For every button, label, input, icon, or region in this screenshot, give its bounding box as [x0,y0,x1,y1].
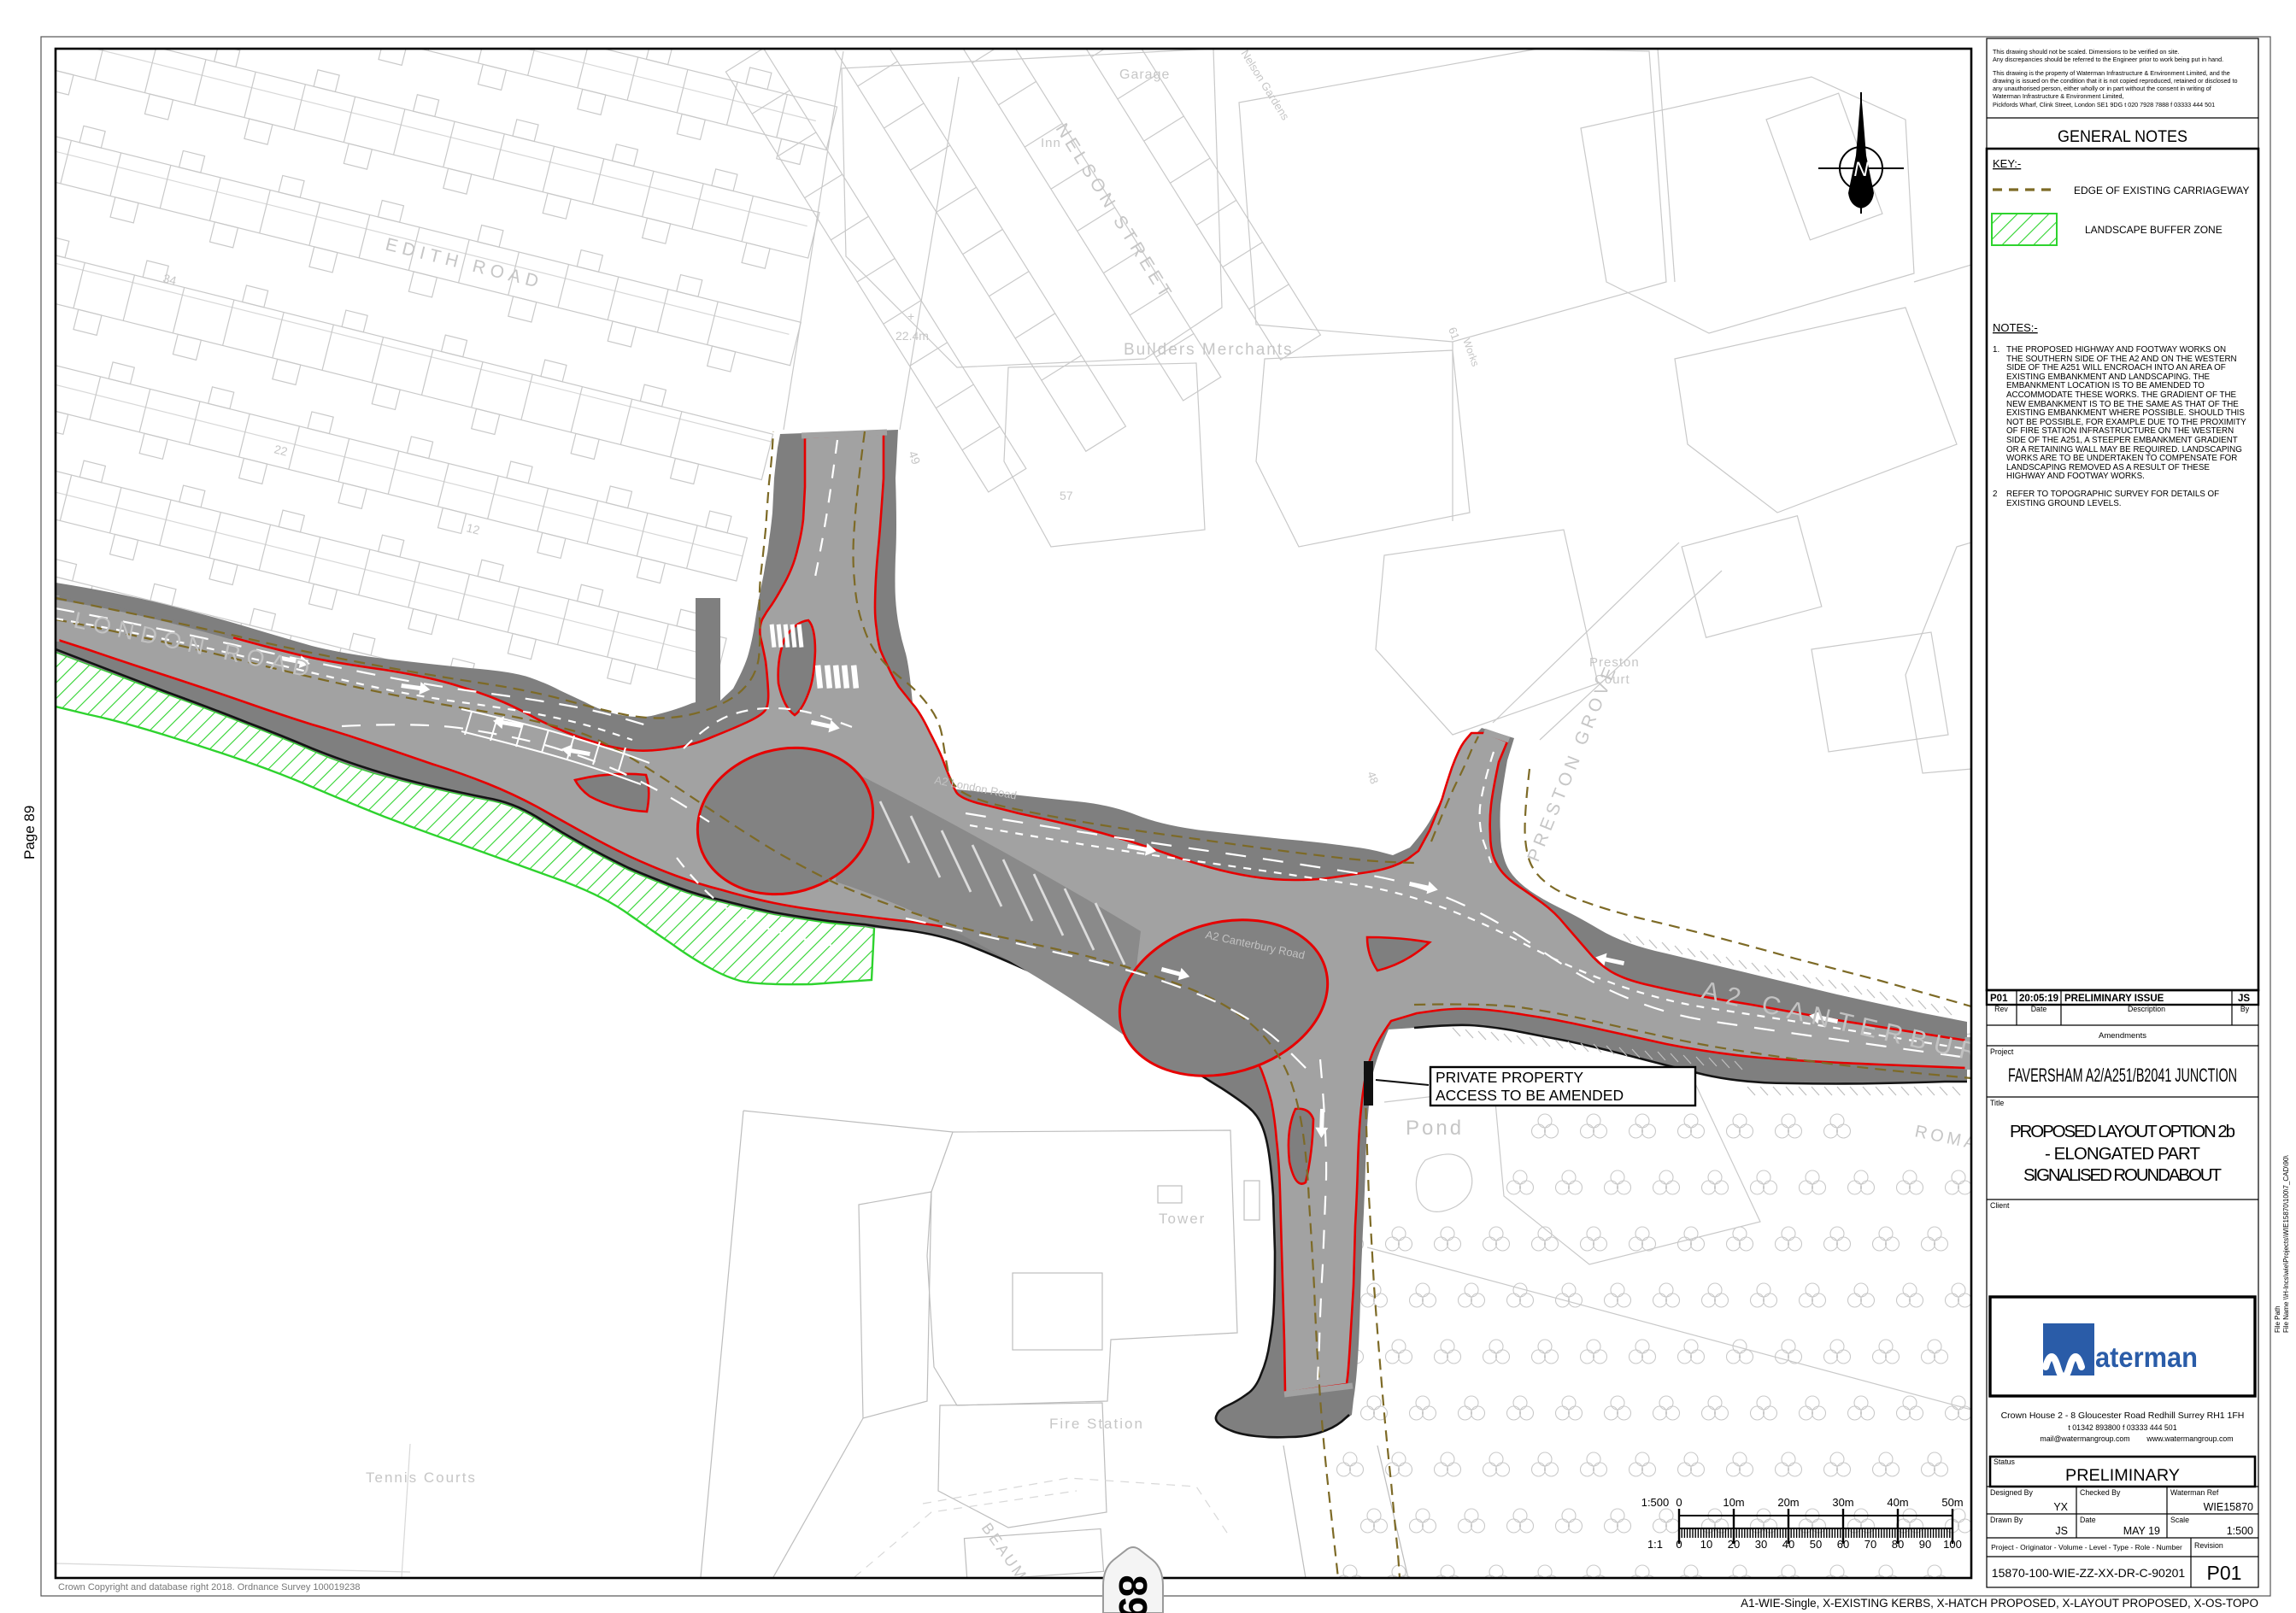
svg-text:EMBANKMENT LOCATION IS TO BE A: EMBANKMENT LOCATION IS TO BE AMENDED TO [2006,381,2205,390]
svg-text:N: N [1853,158,1869,181]
svg-text:90: 90 [1919,1538,1931,1551]
svg-text:- ELONGATED PART: - ELONGATED PART [2045,1144,2200,1164]
svg-text:Garage: Garage [1119,67,1170,82]
svg-text:1:1: 1:1 [1647,1538,1663,1551]
svg-text:70: 70 [1864,1538,1876,1551]
svg-text:Page 89: Page 89 [21,806,38,859]
svg-text:Project: Project [1990,1047,2014,1056]
svg-text:2: 2 [1993,490,1997,499]
svg-text:This drawing should not be sca: This drawing should not be scaled. Dimen… [1993,48,2180,56]
svg-text:Status: Status [1994,1458,2016,1466]
svg-text:By: By [2240,1005,2250,1013]
svg-text:NOTES:-: NOTES:- [1993,321,2038,334]
svg-text:www.watermangroup.com: www.watermangroup.com [2146,1434,2233,1443]
svg-text:1:500: 1:500 [1641,1496,1670,1509]
svg-text:Date: Date [2031,1005,2047,1013]
svg-text:0: 0 [1676,1538,1682,1551]
svg-text:PROPOSED LAYOUT OPTION 2b: PROPOSED LAYOUT OPTION 2b [2010,1122,2235,1141]
svg-text:t 01342 893800 f 03333 444 50: t 01342 893800 f 03333 444 501 [2068,1423,2176,1432]
svg-text:WORKS ARE TO BE UNDERTAKEN TO: WORKS ARE TO BE UNDERTAKEN TO COMPENSATE… [2006,454,2237,463]
svg-text:Waterman Infrastructure & Envi: Waterman Infrastructure & Environment Li… [1993,92,2124,100]
svg-text:Project - Originator - Vol: Project - Originator - Volume - Level - … [1991,1543,2182,1551]
svg-text:A1-WIE-Single, X-EXISTING KERB: A1-WIE-Single, X-EXISTING KERBS, X-HATCH… [1741,1597,2258,1610]
svg-text:JS: JS [2055,1525,2068,1537]
svg-text:30m: 30m [1832,1496,1853,1509]
svg-text:Rev: Rev [1994,1005,2008,1013]
svg-text:GENERAL NOTES: GENERAL NOTES [2058,127,2187,146]
svg-text:LANDSCAPE BUFFER ZONE: LANDSCAPE BUFFER ZONE [2085,224,2223,236]
svg-text:MAY 19: MAY 19 [2123,1525,2160,1537]
svg-text:File Name \\H-lncs\wie\Proje: File Name \\H-lncs\wie\Projects\WIE15870… [2282,1155,2290,1333]
svg-text:40m: 40m [1887,1496,1908,1509]
svg-text:0: 0 [1676,1496,1682,1509]
svg-text:PRELIMINARY ISSUE: PRELIMINARY ISSUE [2064,994,2164,1004]
svg-text:Client: Client [1990,1201,2010,1210]
svg-text:any unauthorised person, eithe: any unauthorised person, either wholly o… [1993,85,2211,92]
svg-text:Description: Description [2128,1005,2165,1013]
svg-text:+: + [907,309,914,323]
svg-text:22.4m: 22.4m [895,329,929,343]
svg-text:P01: P01 [2207,1562,2242,1584]
svg-text:SIGNALISED ROUNDABOUT: SIGNALISED ROUNDABOUT [2023,1165,2222,1185]
svg-text:Crown House 2 - 8 Gloucester: Crown House 2 - 8 Gloucester Road Redhil… [2001,1411,2245,1421]
svg-text:Builders Merchants: Builders Merchants [1124,341,1294,359]
svg-text:FAVERSHAM A2/A251/B2041 JUNCTI: FAVERSHAM A2/A251/B2041 JUNCTION [2008,1065,2237,1086]
svg-text:Any discrepancies should be re: Any discrepancies should be referred to … [1993,56,2223,63]
svg-text:HIGHWAY AND FOOTWAY WORKS.: HIGHWAY AND FOOTWAY WORKS. [2006,472,2145,481]
svg-text:File Path: File Path [2274,1305,2281,1333]
svg-text:89: 89 [1111,1575,1155,1613]
svg-text:EXISTING GROUND LEVELS.: EXISTING GROUND LEVELS. [2006,499,2121,508]
svg-text:80: 80 [1892,1538,1904,1551]
svg-text:P01: P01 [1990,994,2008,1004]
svg-text:aterman: aterman [2095,1341,2198,1373]
svg-text:Waterman Ref: Waterman Ref [2170,1488,2219,1497]
svg-text:OF FIRE STATION INFRASTRUCTURE: OF FIRE STATION INFRASTRUCTURE ON THE WE… [2006,426,2234,436]
svg-text:Tower: Tower [1159,1211,1206,1227]
svg-text:This drawing is the property o: This drawing is the property of Waterman… [1993,69,2230,77]
svg-text:PRELIMINARY: PRELIMINARY [2065,1467,2180,1485]
svg-text:40: 40 [1782,1538,1794,1551]
svg-text:Amendments: Amendments [2099,1031,2146,1041]
svg-text:YX: YX [2053,1501,2068,1513]
svg-text:Scale: Scale [2170,1516,2189,1524]
svg-text:57: 57 [1060,489,1073,502]
svg-text:Revision: Revision [2194,1541,2223,1550]
svg-text:Date: Date [2080,1516,2096,1524]
svg-text:20m: 20m [1777,1496,1799,1509]
svg-text:50: 50 [1810,1538,1822,1551]
svg-text:10m: 10m [1723,1496,1744,1509]
svg-text:20:05:19: 20:05:19 [2019,994,2058,1004]
svg-text:ACCOMMODATE THESE WORKS. THE G: ACCOMMODATE THESE WORKS. THE GRADIENT OF… [2006,390,2237,400]
svg-text:Checked By: Checked By [2080,1488,2121,1497]
svg-text:SIDE OF THE A251, A STEEPER EM: SIDE OF THE A251, A STEEPER EMBANKMENT G… [2006,436,2238,445]
svg-text:Fire Station: Fire Station [1049,1416,1144,1432]
svg-text:mail@watermangroup.com: mail@watermangroup.com [2040,1434,2129,1443]
svg-text:50m: 50m [1941,1496,1963,1509]
svg-text:15870-100-WIE-ZZ-XX-DR-C-90201: 15870-100-WIE-ZZ-XX-DR-C-90201 [1992,1566,2186,1580]
svg-text:Tennis Courts: Tennis Courts [366,1469,477,1486]
svg-text:1:500: 1:500 [2227,1525,2253,1537]
svg-text:60: 60 [1837,1538,1849,1551]
svg-text:10: 10 [1700,1538,1712,1551]
svg-text:Preston: Preston [1589,655,1640,670]
svg-text:ACCESS TO BE AMENDED: ACCESS TO BE AMENDED [1436,1087,1624,1104]
svg-text:WIE15870: WIE15870 [2204,1501,2253,1513]
svg-text:Crown Copyright and database r: Crown Copyright and database right 2018.… [58,1582,360,1592]
svg-text:Designed By: Designed By [1990,1488,2033,1497]
svg-text:Pickfords Wharf, Clink Street,: Pickfords Wharf, Clink Street, London SE… [1993,101,2215,109]
svg-text:1.: 1. [1993,345,1999,355]
svg-text:KEY:-: KEY:- [1993,157,2021,170]
svg-text:REFER TO TOPOGRAPHIC SURVEY FO: REFER TO TOPOGRAPHIC SURVEY FOR DETAILS … [2006,490,2219,499]
svg-text:Inn: Inn [1041,136,1061,150]
svg-text:drawing is issued on the condi: drawing is issued on the condition that … [1993,77,2237,85]
svg-text:THE PROPOSED HIGHWAY AND FOOTW: THE PROPOSED HIGHWAY AND FOOTWAY WORKS O… [2006,345,2226,355]
svg-text:SIDE OF THE A251 WILL ENCROACH: SIDE OF THE A251 WILL ENCROACH INTO AN A… [2006,363,2226,372]
svg-text:JS: JS [2238,994,2250,1004]
svg-text:Pond: Pond [1406,1117,1464,1140]
svg-text:20: 20 [1728,1538,1740,1551]
svg-text:Title: Title [1990,1099,2004,1107]
svg-text:EXISTING EMBANKMENT WHERE POSS: EXISTING EMBANKMENT WHERE POSSIBLE. SHOU… [2006,408,2245,418]
svg-text:EDGE OF EXISTING CARRIAGEWAY: EDGE OF EXISTING CARRIAGEWAY [2074,185,2249,196]
svg-text:100: 100 [1943,1538,1962,1551]
svg-text:30: 30 [1755,1538,1767,1551]
svg-text:Drawn By: Drawn By [1990,1516,2023,1524]
svg-text:PRIVATE PROPERTY: PRIVATE PROPERTY [1436,1069,1583,1086]
